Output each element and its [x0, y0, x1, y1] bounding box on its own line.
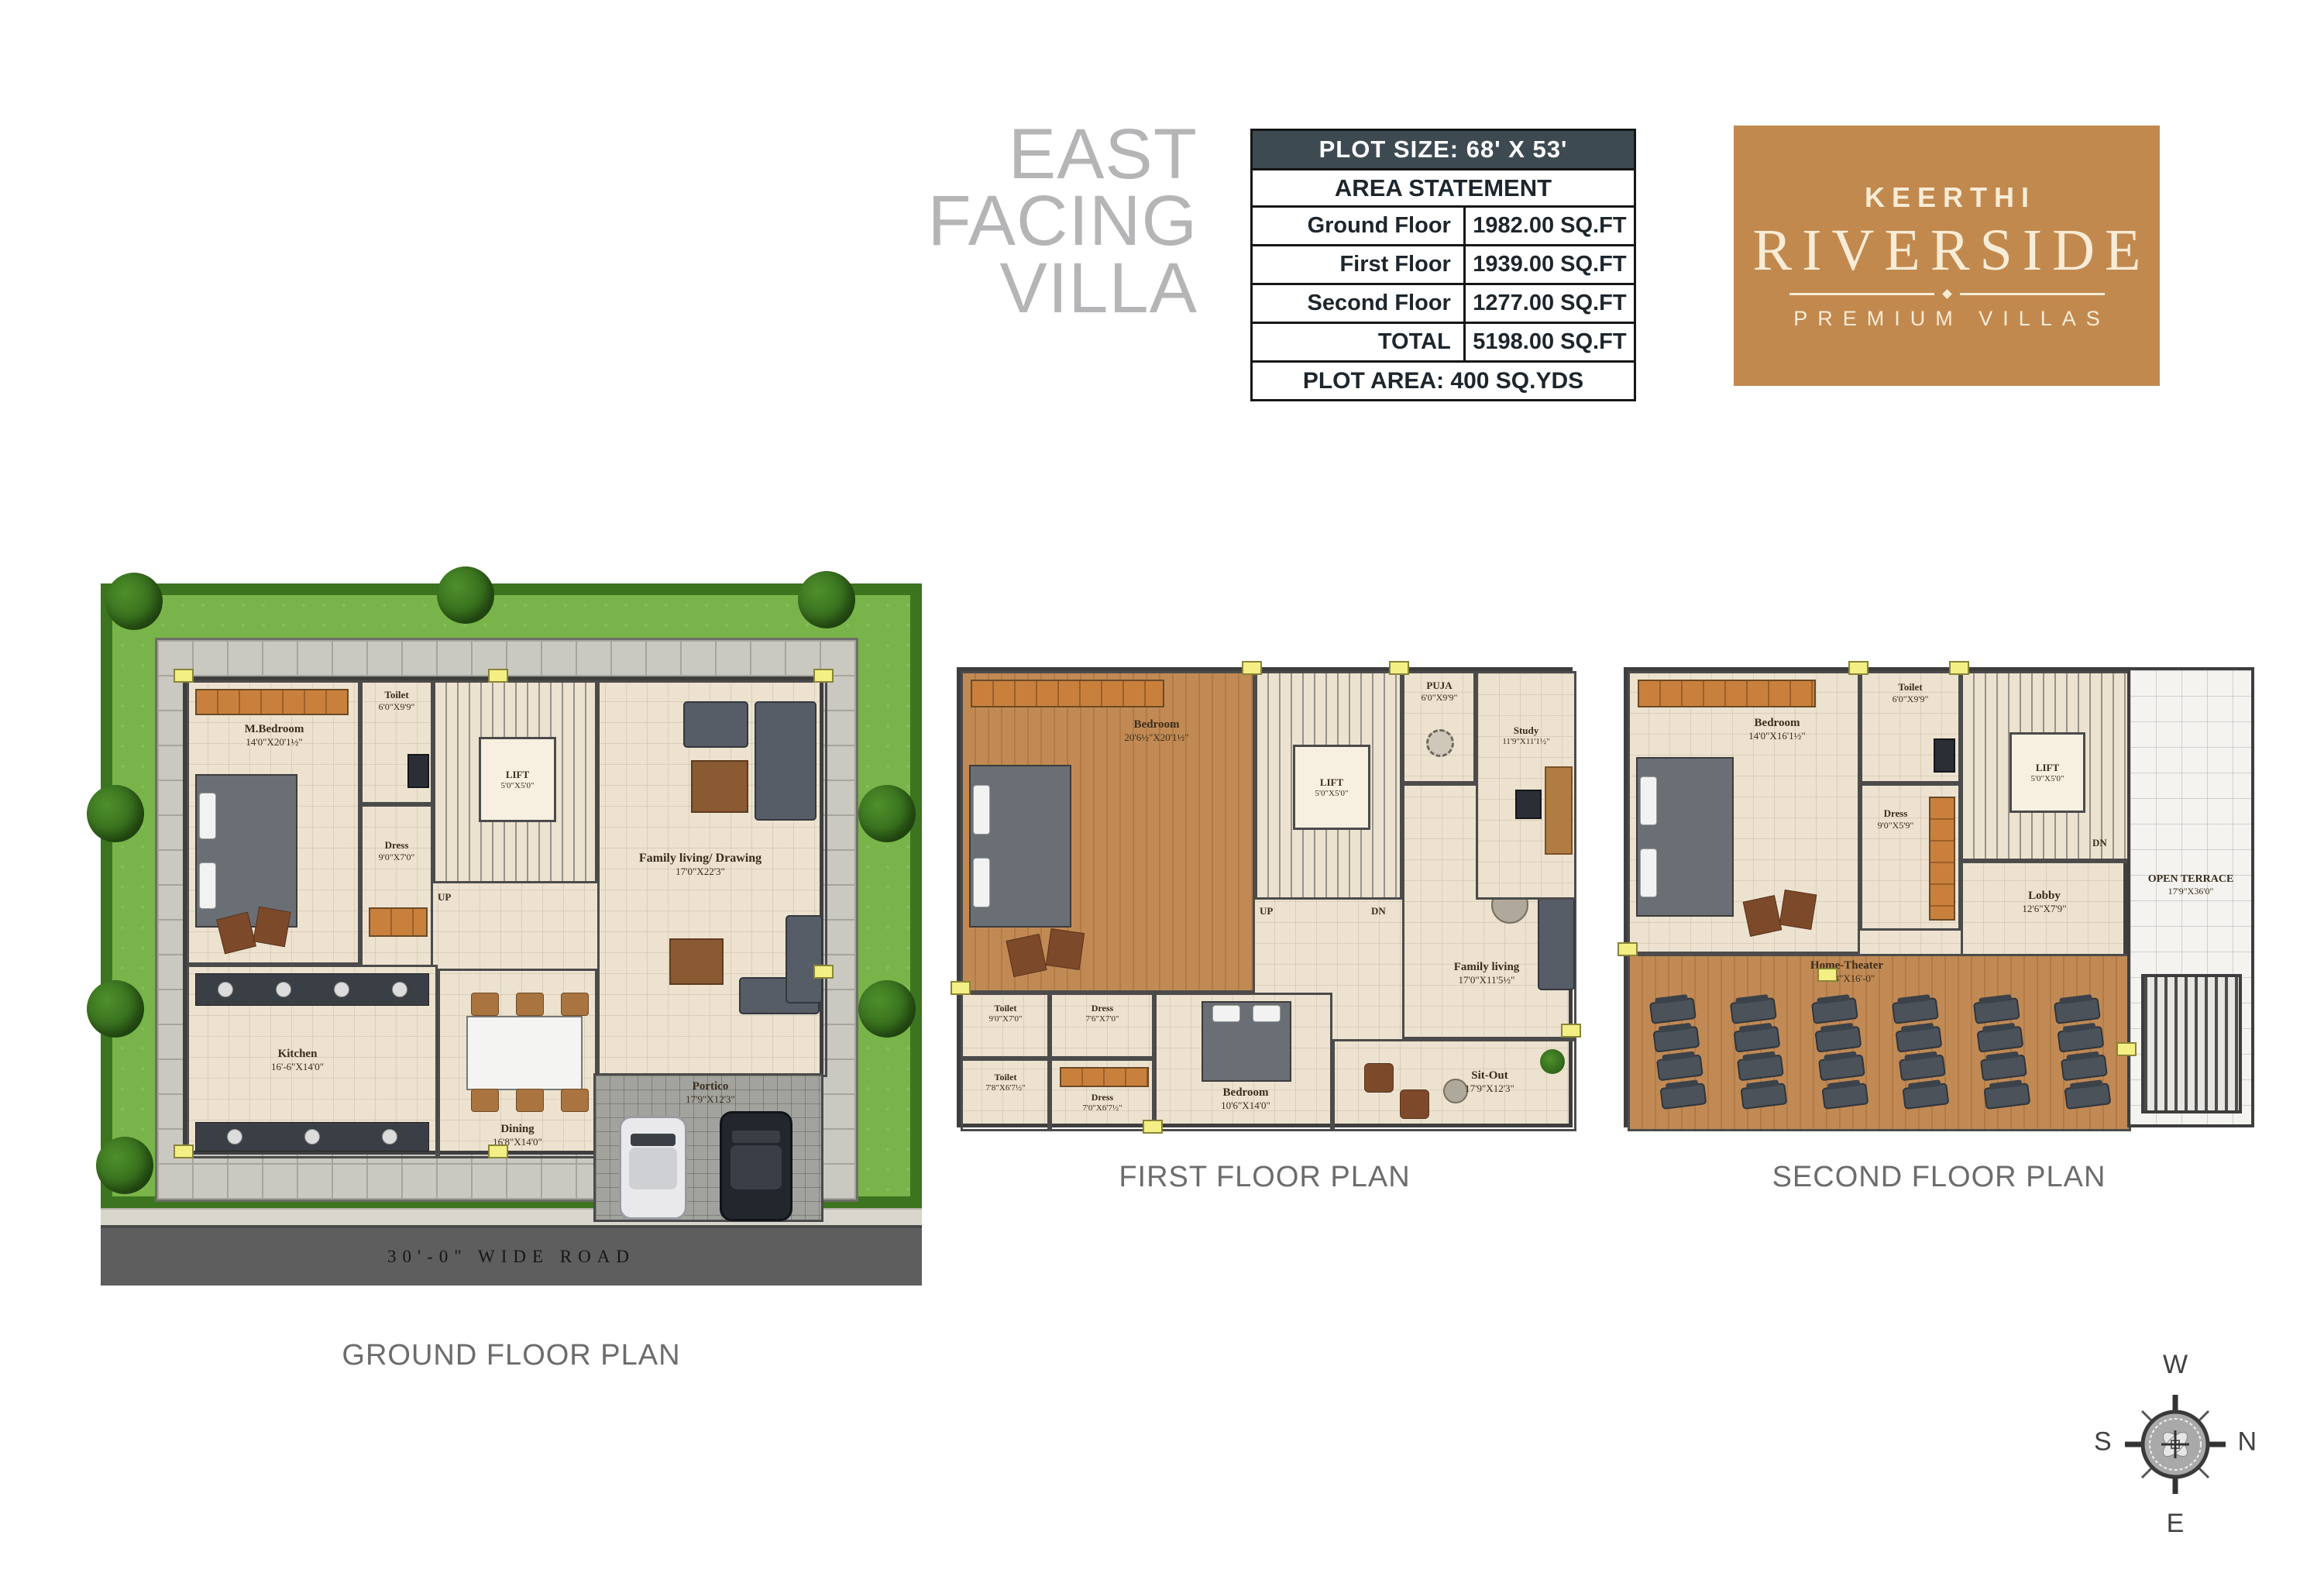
table-row: Ground Floor 1982.00 SQ.FT [1253, 205, 1634, 244]
sink-burner-icon [218, 982, 233, 997]
wall-marker [488, 669, 508, 683]
room-bedroom-2: Bedroom 10'6"X14'0" [1154, 993, 1332, 1131]
room-study: Study 11'9"X11'1½" [1476, 671, 1576, 900]
car-roof [629, 1148, 677, 1189]
room-label: Lobby 12'6"X7'9" [1971, 890, 2118, 915]
coffee-table [669, 938, 724, 985]
tree-icon [105, 573, 163, 630]
room-lift: LIFT 5'0"X5'0" [2009, 732, 2085, 813]
divider-line [1960, 293, 2105, 295]
table-row: TOTAL 5198.00 SQ.FT [1253, 322, 1634, 360]
car-roof [731, 1145, 782, 1189]
row-label: Ground Floor [1253, 208, 1466, 244]
sofa [683, 701, 748, 748]
compass-south-label: S [2094, 1427, 2112, 1457]
room-kitchen: Kitchen 16'-6"X14'0" [187, 965, 438, 1158]
recliner-seat-icon [1734, 1026, 1781, 1053]
room-label: Dress 9'0"X7'0" [363, 839, 431, 863]
row-label: TOTAL [1253, 324, 1466, 360]
sink-burner-icon [334, 982, 349, 997]
villa-title-line: FACING [891, 188, 1198, 254]
seat-column [1730, 997, 1789, 1120]
plot-area-row: PLOT AREA: 400 SQ.YDS [1253, 360, 1634, 399]
washbasin [1934, 738, 1955, 773]
stairs-dn-label: DN [1371, 905, 1386, 917]
chair-icon [1364, 1063, 1394, 1093]
plot-size-header: PLOT SIZE: 68' X 53' [1253, 131, 1634, 168]
wall-marker [1561, 1024, 1581, 1038]
road-label: 30'-0" WIDE ROAD [387, 1247, 635, 1267]
recliner-seat-icon [2057, 1026, 2104, 1053]
room-label: Toilet 9'0"X7'0" [963, 1003, 1048, 1024]
room-dining: Dining 16'8"X14'0" [438, 969, 597, 1158]
recliner-seat-icon [1659, 1083, 1707, 1110]
staircase: LIFT 5'0"X5'0" [1961, 671, 2131, 861]
recliner-seat-icon [1818, 1054, 1865, 1081]
wardrobe [1929, 797, 1955, 921]
brochure-page: EAST FACING VILLA PLOT SIZE: 68' X 53' A… [0, 0, 2324, 1573]
rug [253, 907, 290, 948]
room-label: Sit-Out 17'9"X12'3" [1412, 1069, 1567, 1095]
room-lift: LIFT 5'0"X5'0" [479, 737, 556, 822]
room-label: Bedroom 20'6½"X20'1½" [1071, 718, 1242, 744]
recliner-seat-icon [1896, 1026, 1943, 1053]
brand-logo: KEERTHI RIVERSIDE PREMIUM VILLAS [1734, 126, 2160, 386]
recliner-seat-icon [1976, 1026, 2023, 1053]
compass-north-label: N [2237, 1427, 2257, 1457]
bed [969, 765, 1071, 928]
bed [1636, 757, 1734, 917]
room-label: Family living/ Drawing 17'0"X22'3" [623, 852, 778, 878]
villa-title-line: EAST [891, 121, 1198, 188]
room-label: M.Bedroom 14'0"X20'1½" [197, 723, 352, 749]
room-toilet: Toilet 6'0"X9'9" [1860, 671, 1961, 783]
sink-burner-icon [227, 1129, 242, 1144]
theater-seats [1656, 1000, 2106, 1118]
recliner-seat-icon [1821, 1083, 1868, 1110]
row-value: 1982.00 SQ.FT [1466, 208, 1634, 244]
recliner-seat-icon [1903, 1083, 1950, 1110]
room-bedroom-1: Bedroom 20'6½"X20'1½" [961, 671, 1255, 993]
recliner-seat-icon [1983, 1083, 2030, 1110]
sink-burner-icon [304, 1129, 320, 1144]
recliner-seat-icon [1811, 997, 1858, 1024]
sofa [786, 915, 823, 1003]
room-label: Study 11'9"X11'1½" [1478, 725, 1574, 746]
row-value: 1939.00 SQ.FT [1466, 246, 1634, 283]
office-chair [1515, 790, 1542, 819]
room-lift: LIFT 5'0"X5'0" [1293, 745, 1370, 830]
room-sitout: Sit-Out 17'9"X12'3" [1332, 1039, 1576, 1131]
chair-icon [516, 1089, 544, 1112]
second-floor-caption: SECOND FLOOR PLAN [1624, 1161, 2254, 1194]
stairs-up-label: UP [438, 891, 451, 904]
first-floor-building: Bedroom 20'6½"X20'1½" LIFT 5'0"X5'0" UP … [957, 667, 1573, 1127]
tree-icon [798, 571, 855, 628]
room-label: Family living 17'0"X11'5½" [1409, 961, 1564, 986]
room-family-living: Family living/ Drawing 17'0"X22'3" [597, 680, 827, 1077]
wall-marker [1618, 942, 1638, 956]
recliner-seat-icon [2054, 997, 2101, 1024]
chair-icon [516, 993, 544, 1016]
tree-icon [437, 566, 494, 624]
room-label: Kitchen 16'-6"X14'0" [220, 1048, 375, 1073]
bed [1202, 1001, 1291, 1082]
tree-icon [858, 980, 916, 1038]
sink-burner-icon [392, 982, 407, 997]
room-open-terrace: OPEN TERRACE 17'9"X36'0" [2127, 667, 2254, 1127]
tree-icon [858, 785, 916, 842]
second-floor-building: Bedroom 14'0"X16'1½" Toilet 6'0"X9'9" Dr… [1624, 667, 2127, 1127]
road: 30'-0" WIDE ROAD [101, 1225, 922, 1286]
recliner-seat-icon [1656, 1054, 1703, 1081]
rug [1743, 895, 1783, 937]
rangoli-icon [1426, 729, 1454, 757]
recliner-seat-icon [1979, 1054, 2027, 1081]
recliner-seat-icon [1730, 997, 1777, 1024]
area-statement-table: PLOT SIZE: 68' X 53' AREA STATEMENT Grou… [1250, 129, 1636, 401]
tree-icon [87, 785, 144, 842]
seat-column [1972, 997, 2031, 1120]
table-row: Second Floor 1277.00 SQ.FT [1253, 283, 1634, 322]
row-label: First Floor [1253, 246, 1466, 283]
sink-burner-icon [276, 982, 291, 997]
room-label: Toilet 6'0"X9'9" [1862, 681, 1958, 705]
room-label: Dining 16'8"X14'0" [440, 1123, 595, 1148]
room-label: Bedroom 10'6"X14'0" [1168, 1086, 1323, 1112]
stairs-up-label: UP [1260, 905, 1273, 917]
ground-floor-plan: M.Bedroom 14'0"X20'1½" Toilet 6'0"X9'9" … [101, 577, 922, 1282]
room-label: Bedroom 14'0"X16'1½" [1707, 717, 1847, 742]
stairs-dn-label: DN [2092, 837, 2107, 849]
room-label: PUJA 6'0"X9'9" [1404, 680, 1474, 704]
windshield [732, 1131, 780, 1143]
wall-marker [488, 1144, 508, 1158]
chair-icon [471, 1089, 499, 1112]
room-label: Portico 17'9"X12'3" [633, 1080, 788, 1106]
sofa [755, 701, 816, 821]
compass-west-label: W [2163, 1350, 2188, 1380]
second-floor-plan: Bedroom 14'0"X16'1½" Toilet 6'0"X9'9" Dr… [1624, 667, 2254, 1127]
area-statement-title: AREA STATEMENT [1253, 168, 1634, 205]
recliner-seat-icon [1741, 1083, 1788, 1110]
villa-title: EAST FACING VILLA [891, 121, 1198, 322]
rug [1779, 890, 1817, 930]
ground-floor-caption: GROUND FLOOR PLAN [101, 1339, 922, 1372]
wall-marker [1817, 968, 1838, 982]
recliner-seat-icon [1814, 1026, 1862, 1053]
rug [1046, 928, 1085, 970]
chair-icon [471, 993, 499, 1016]
room-label: Home-Theater 33'-3"X16'-0" [1746, 959, 1948, 985]
room-label: Dress 9'0"X5'9" [1862, 807, 1929, 831]
wall-marker [1242, 661, 1262, 675]
brand-name: KEERTHI [1858, 181, 2036, 214]
diamond-icon [1942, 289, 1952, 299]
dining-table [466, 1016, 583, 1090]
wall-marker [1389, 661, 1409, 675]
recliner-seat-icon [2064, 1083, 2111, 1110]
room-dress: Dress 9'0"X7'0" [360, 804, 433, 967]
compass-east-label: E [2167, 1509, 2185, 1539]
wall-marker [1143, 1120, 1163, 1134]
room-label: Dress 7'6"X7'0" [1052, 1003, 1153, 1024]
first-floor-plan: Bedroom 20'6½"X20'1½" LIFT 5'0"X5'0" UP … [957, 667, 1573, 1127]
room-toilet: Toilet 9'0"X7'0" [961, 993, 1050, 1058]
seat-column [1892, 997, 1951, 1120]
wardrobe [1638, 680, 1816, 707]
wall-marker [813, 965, 834, 979]
washbasin [407, 754, 429, 788]
tree-icon [96, 1137, 153, 1194]
first-floor-caption: FIRST FLOOR PLAN [957, 1161, 1573, 1194]
room-dress: Dress 7'0"X6'7½" [1050, 1058, 1154, 1131]
bed [195, 774, 297, 928]
room-home-theater: Home-Theater 33'-3"X16'-0" [1628, 954, 2131, 1131]
row-value: 5198.00 SQ.FT [1466, 324, 1634, 360]
table-row: First Floor 1939.00 SQ.FT [1253, 244, 1634, 283]
recliner-seat-icon [1737, 1054, 1784, 1081]
recliner-seat-icon [1899, 1054, 1946, 1081]
room-label: Toilet 6'0"X9'9" [363, 689, 431, 713]
staircase: LIFT 5'0"X5'0" [1255, 671, 1402, 900]
room-master-bedroom: M.Bedroom 14'0"X20'1½" [187, 680, 360, 965]
seat-column [1811, 997, 1870, 1120]
room-toilet: Toilet 7'8"X6'7½" [961, 1058, 1050, 1131]
chair-icon [561, 993, 589, 1016]
room-label: OPEN TERRACE 17'9"X36'0" [2130, 873, 2251, 897]
seat-column [2054, 997, 2113, 1120]
wall-marker [813, 669, 834, 683]
divider-line [1789, 293, 1934, 295]
chair-icon [561, 1089, 589, 1112]
room-dress: Dress 9'0"X5'9" [1860, 783, 1961, 931]
windshield [631, 1134, 675, 1145]
recliner-seat-icon [1652, 1026, 1700, 1053]
sink-burner-icon [382, 1129, 397, 1144]
recliner-seat-icon [1649, 997, 1697, 1024]
row-value: 1277.00 SQ.FT [1466, 285, 1634, 322]
rug [1006, 934, 1047, 977]
room-label: Dress 7'0"X6'7½" [1052, 1092, 1153, 1113]
wall-marker [1949, 661, 1969, 675]
car-icon [619, 1116, 687, 1220]
wardrobe [369, 907, 428, 937]
room-label: Toilet 7'8"X6'7½" [963, 1072, 1048, 1093]
logo-tagline: PREMIUM VILLAS [1783, 307, 2110, 331]
dining-chairs [471, 993, 589, 1016]
villa-title-line: VILLA [891, 255, 1198, 322]
recliner-seat-icon [2061, 1054, 2108, 1081]
car-icon [720, 1111, 792, 1221]
room-puja: PUJA 6'0"X9'9" [1402, 671, 1476, 783]
room-dress: Dress 7'6"X7'0" [1050, 993, 1154, 1058]
project-name: RIVERSIDE [1743, 217, 2151, 284]
desk [1545, 766, 1573, 855]
kitchen-counter [195, 973, 429, 1006]
compass-rose: W N S E [2094, 1350, 2257, 1539]
room-bedroom: Bedroom 14'0"X16'1½" [1628, 671, 1860, 954]
logo-divider [1789, 291, 2105, 298]
seat-column [1649, 997, 1708, 1120]
pergola [2141, 974, 2242, 1113]
wall-marker [1848, 661, 1868, 675]
staircase: LIFT 5'0"X5'0" [433, 680, 597, 883]
room-toilet: Toilet 6'0"X9'9" [360, 680, 433, 804]
wall-marker [2116, 1042, 2137, 1056]
room-lobby: Lobby 12'6"X7'9" [1961, 861, 2131, 958]
recliner-seat-icon [1972, 997, 2020, 1024]
room-portico: Portico 17'9"X12'3" [593, 1073, 823, 1222]
tree-icon [87, 980, 144, 1038]
wall-marker [174, 1144, 194, 1158]
wall-marker [174, 669, 194, 683]
wardrobe [971, 680, 1164, 707]
wardrobe [1060, 1067, 1149, 1087]
wardrobe [195, 689, 349, 715]
kitchen-counter [195, 1122, 429, 1151]
recliner-seat-icon [1892, 997, 1939, 1024]
row-label: Second Floor [1253, 285, 1466, 322]
wall-marker [951, 981, 971, 995]
dining-chairs [471, 1089, 589, 1112]
coffee-table [691, 760, 748, 813]
